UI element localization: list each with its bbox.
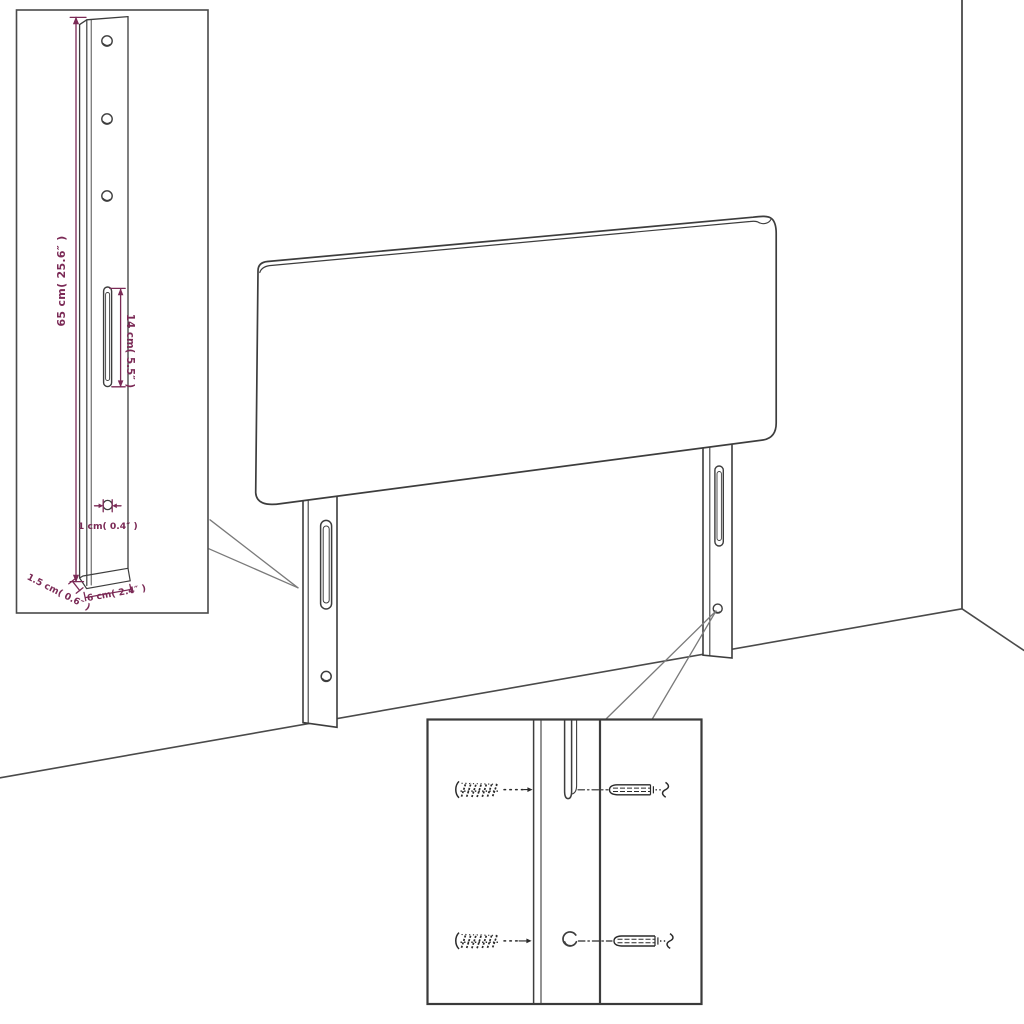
headboard-left-leg	[303, 489, 337, 727]
screw-inset-pointer-left	[606, 611, 717, 720]
headboard	[256, 216, 777, 727]
hole-diameter-label: 1 cm( 0.4″ )	[78, 521, 138, 532]
diagram-canvas: 65 cm( 25.6″ ) 14 cm( 5.5″ ) 1 cm( 0.4″ …	[0, 0, 1024, 1024]
headboard-dimension-diagram: 65 cm( 25.6″ ) 14 cm( 5.5″ ) 1 cm( 0.4″ …	[0, 0, 1024, 1024]
screw-detail-inset	[428, 720, 702, 1005]
leg-height-label: 65 cm( 25.6″ )	[55, 235, 68, 326]
leg-inset-pointer-upper	[210, 520, 298, 588]
leg-detail-inset: 65 cm( 25.6″ ) 14 cm( 5.5″ ) 1 cm( 0.4″ …	[17, 10, 209, 613]
pointer-lines-leg-inset	[209, 520, 298, 588]
leg-inset-pointer-lower	[209, 549, 298, 588]
right-leg-slot-inner	[717, 472, 721, 541]
slot-length-label: 14 cm( 5.5″ )	[124, 314, 136, 388]
floor-line-right	[962, 609, 1024, 651]
left-leg-hole	[321, 671, 331, 681]
left-leg-slot-inner	[323, 526, 329, 603]
pointer-lines-screw-inset	[606, 611, 717, 720]
headboard-panel	[256, 216, 777, 504]
